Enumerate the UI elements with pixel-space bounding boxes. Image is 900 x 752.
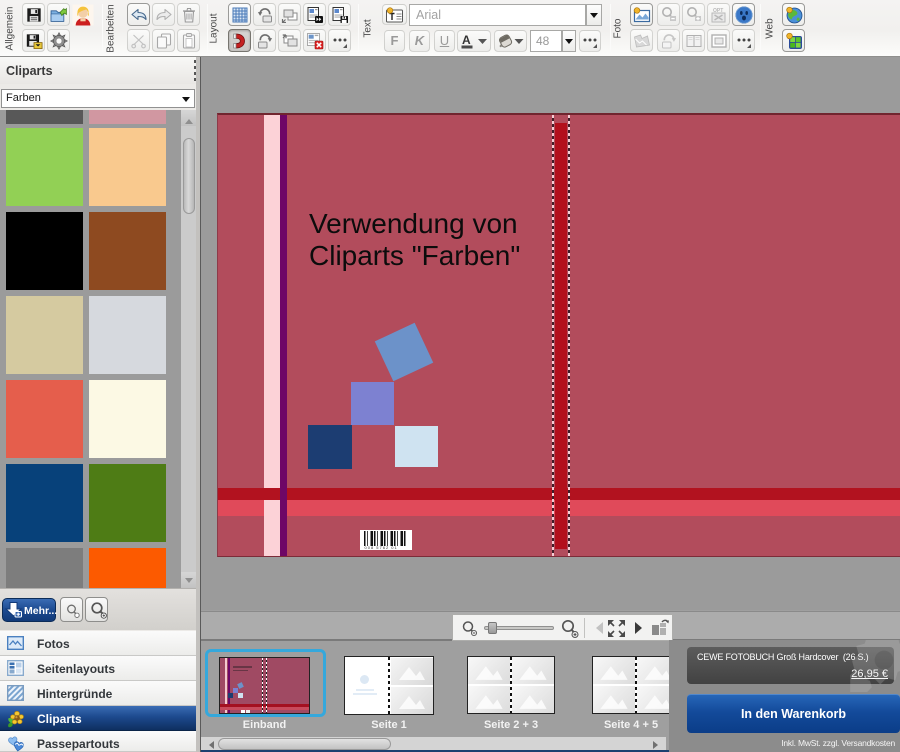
svg-text:A: A bbox=[462, 33, 471, 47]
